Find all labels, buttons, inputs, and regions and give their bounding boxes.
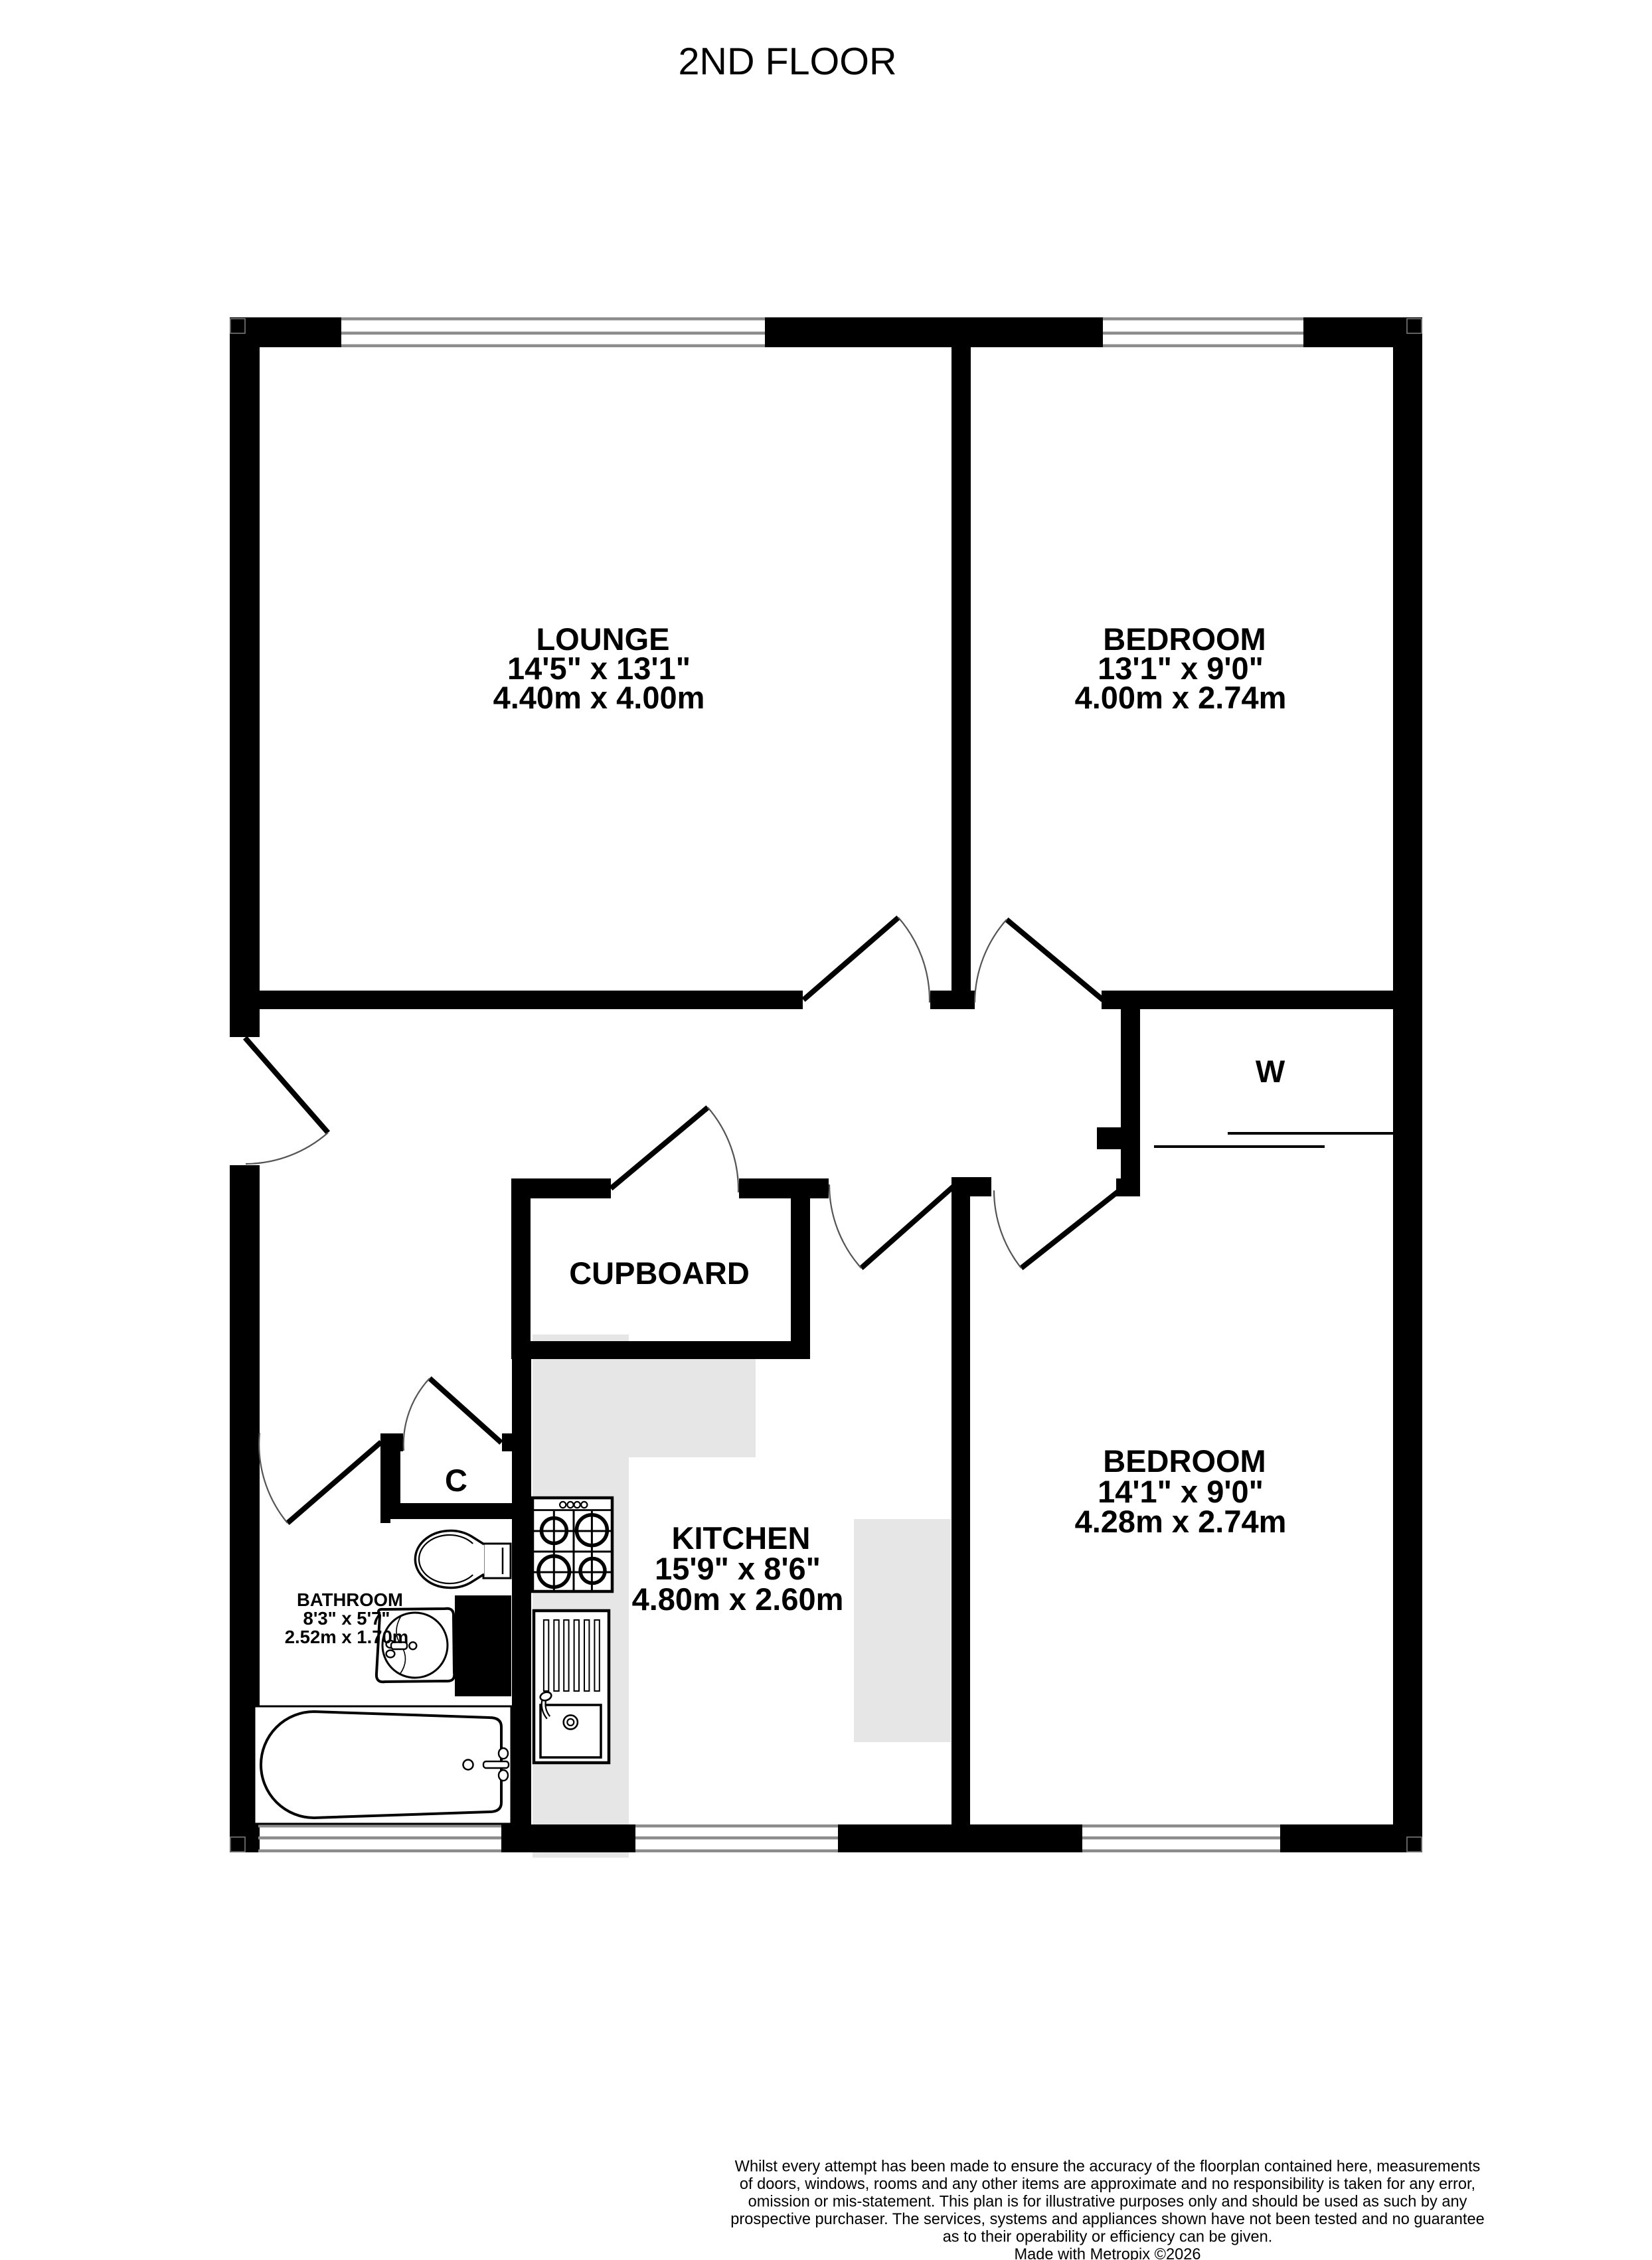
svg-text:as to their operability or eff: as to their operability or efficiency ca… — [943, 2229, 1273, 2246]
svg-text:2.52m x 1.70m: 2.52m x 1.70m — [285, 1627, 409, 1647]
svg-text:2ND FLOOR: 2ND FLOOR — [678, 40, 896, 83]
svg-text:4.28m x 2.74m: 4.28m x 2.74m — [1075, 1504, 1287, 1539]
svg-text:omission or mis-statement. Thi: omission or mis-statement. This plan is … — [748, 2194, 1467, 2211]
svg-text:4.40m x 4.00m: 4.40m x 4.00m — [493, 680, 705, 715]
svg-text:8'3" x 5'7": 8'3" x 5'7" — [303, 1608, 390, 1629]
svg-text:4.80m x 2.60m: 4.80m x 2.60m — [632, 1581, 844, 1617]
svg-text:of doors, windows, rooms and a: of doors, windows, rooms and any other i… — [740, 2176, 1475, 2193]
svg-text:BATHROOM: BATHROOM — [297, 1589, 403, 1610]
svg-text:Whilst every attempt has been: Whilst every attempt has been made to en… — [735, 2158, 1481, 2176]
svg-text:prospective purchaser. The ser: prospective purchaser. The services, sys… — [730, 2211, 1484, 2228]
svg-text:CUPBOARD: CUPBOARD — [569, 1255, 750, 1291]
svg-text:Made with Metropix ©2026: Made with Metropix ©2026 — [1015, 2246, 1201, 2260]
svg-text:W: W — [1256, 1054, 1285, 1089]
svg-text:C: C — [445, 1463, 467, 1498]
svg-text:4.00m x 2.74m: 4.00m x 2.74m — [1075, 680, 1287, 715]
